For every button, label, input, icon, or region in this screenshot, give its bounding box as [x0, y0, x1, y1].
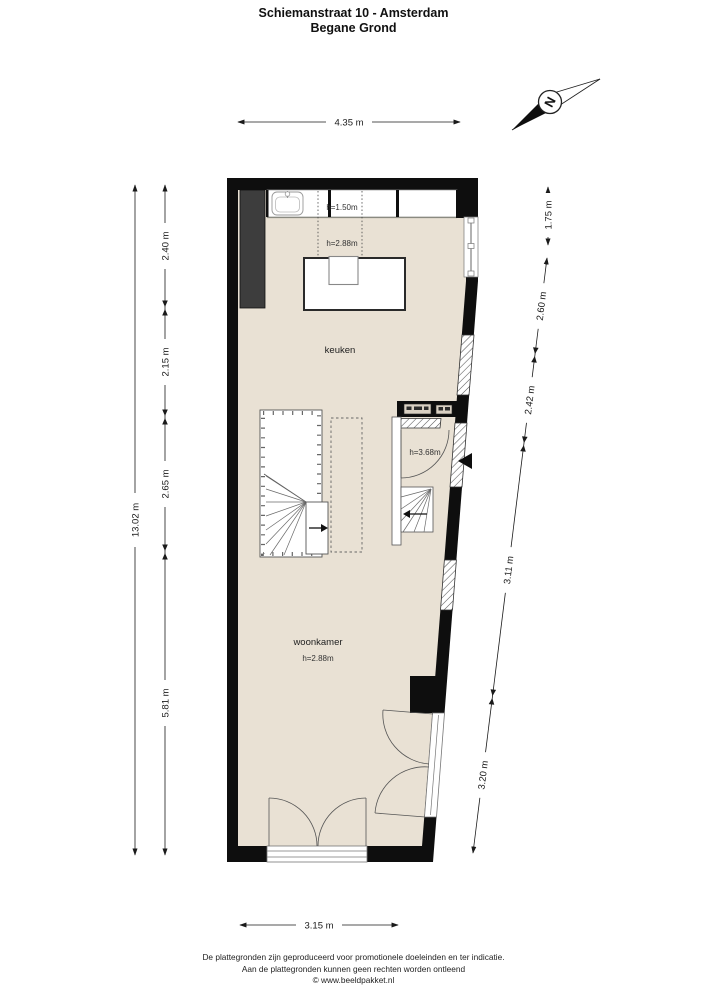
wall-post: [410, 676, 438, 713]
corner-wall-block: [456, 190, 467, 218]
dim-label-right-top: 1.75 m: [541, 193, 555, 237]
dim-label-right-seg-4: 3.20 m: [473, 751, 493, 798]
footer-line-2: Aan de plattegronden kunnen geen rechten…: [0, 964, 707, 976]
svg-text:13.02 m: 13.02 m: [131, 503, 142, 537]
height-label-entry: h=3.68m: [409, 448, 441, 457]
height-label-counter: h=1.50m: [326, 203, 358, 212]
dim-label-right-seg-2: 2.42 m: [520, 376, 540, 423]
counter-divider: [396, 190, 399, 217]
svg-text:2.60 m: 2.60 m: [535, 291, 549, 321]
dim-label-bottom: 3.15 m: [296, 918, 342, 932]
dim-label-left-seg-2: 2.15 m: [158, 339, 172, 385]
kitchen-island: [304, 257, 405, 311]
footer-line-1: De plattegronden zijn geproduceerd voor …: [0, 952, 707, 964]
dim-label-left-seg-3: 2.65 m: [158, 461, 172, 507]
closet-block: [240, 190, 265, 308]
height-label-kitchen: h=2.88m: [326, 239, 358, 248]
dim-label-left-seg-4: 5.81 m: [158, 680, 172, 726]
footer-disclaimer: De plattegronden zijn geproduceerd voor …: [0, 952, 707, 987]
svg-text:3.11 m: 3.11 m: [502, 555, 516, 585]
svg-text:2.40 m: 2.40 m: [161, 231, 172, 260]
svg-text:2.65 m: 2.65 m: [161, 469, 172, 498]
dim-label-top: 4.35 m: [326, 115, 372, 129]
staircase: [260, 410, 328, 557]
island-cooktop: [329, 257, 358, 285]
svg-text:4.35 m: 4.35 m: [334, 118, 363, 129]
svg-text:5.81 m: 5.81 m: [161, 688, 172, 717]
footer-line-3: © www.beeldpakket.nl: [0, 975, 707, 987]
sink-icon: [272, 191, 303, 215]
interior-wall: [392, 417, 401, 545]
svg-text:3.20 m: 3.20 m: [476, 760, 490, 790]
dim-label-right-seg-1: 2.60 m: [531, 282, 551, 329]
dim-label-right-seg-3: 3.11 m: [498, 546, 518, 593]
meter-boxes: [404, 404, 452, 414]
counter-divider: [266, 190, 269, 217]
svg-text:2.15 m: 2.15 m: [161, 347, 172, 376]
svg-text:3.15 m: 3.15 m: [304, 921, 333, 932]
svg-text:2.42 m: 2.42 m: [523, 385, 537, 415]
compass-icon: N: [512, 79, 600, 130]
room-label-living: woonkamer: [292, 637, 342, 648]
entry-stairs: [401, 487, 433, 532]
window-top-right: [464, 217, 478, 277]
entry-door-sill: [400, 419, 441, 429]
floorplan-drawing: h=1.50m h=2.88m keuken: [0, 0, 707, 1000]
height-label-living: h=2.88m: [302, 654, 334, 663]
svg-text:1.75 m: 1.75 m: [544, 200, 555, 229]
dim-label-left-seg-1: 2.40 m: [158, 223, 172, 269]
room-label-kitchen: keuken: [325, 345, 356, 356]
dim-label-left-total: 13.02 m: [128, 493, 142, 547]
